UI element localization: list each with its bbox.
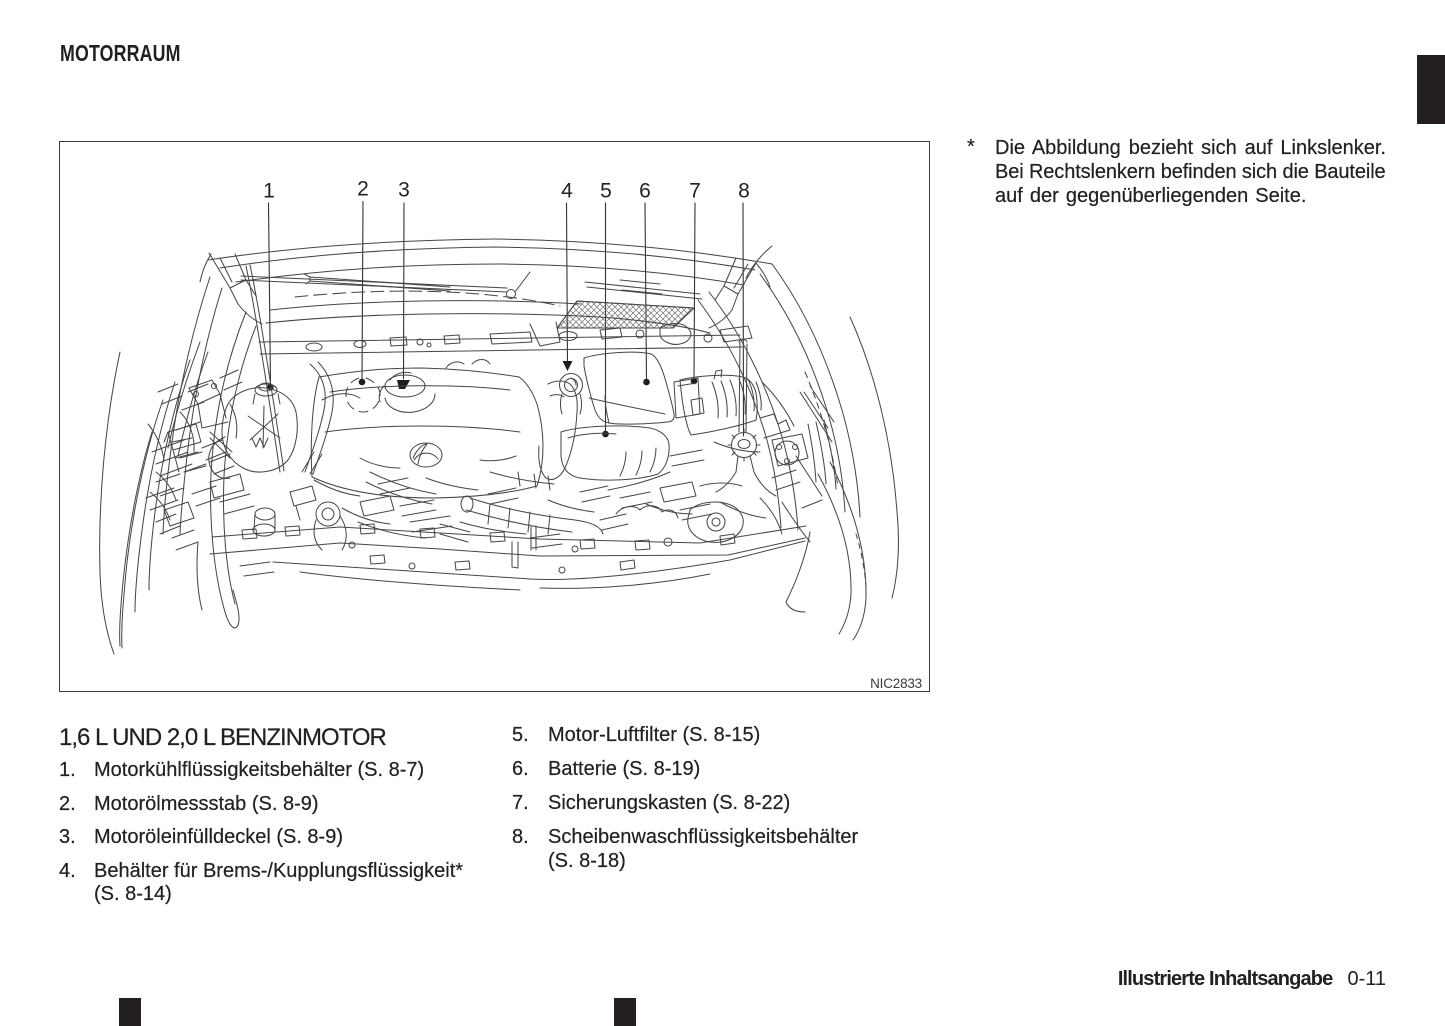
svg-text:5: 5 xyxy=(600,180,612,203)
svg-text:2: 2 xyxy=(357,178,369,201)
svg-text:7: 7 xyxy=(689,180,701,203)
svg-text:6: 6 xyxy=(639,180,651,203)
svg-text:1: 1 xyxy=(263,180,275,203)
svg-text:4: 4 xyxy=(561,180,573,203)
svg-text:3: 3 xyxy=(398,179,410,202)
svg-text:8: 8 xyxy=(738,180,750,203)
